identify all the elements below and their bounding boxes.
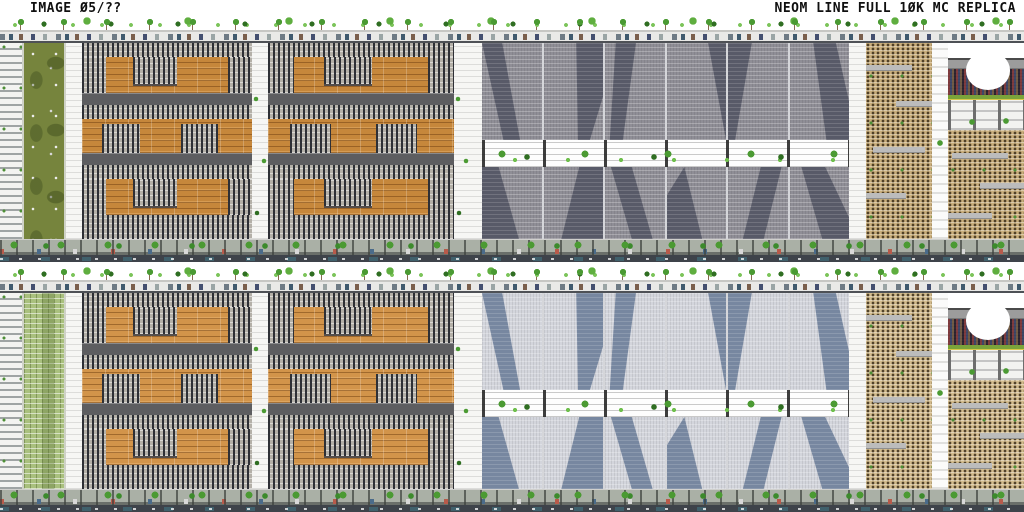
balcony-slab xyxy=(873,397,926,403)
diagonal-glass-facet xyxy=(605,43,665,140)
orange-residential-block xyxy=(82,43,252,239)
window-patch xyxy=(290,124,331,153)
window-strip xyxy=(82,165,252,179)
window-strip xyxy=(268,355,454,369)
diagonal-glass-facet xyxy=(728,417,788,489)
orange-mass xyxy=(82,57,252,93)
diagonal-glass-facet xyxy=(790,417,850,489)
glass-tower-module xyxy=(726,417,788,489)
striped-end-facade xyxy=(0,293,22,489)
window-strip xyxy=(268,165,454,179)
diagonal-glass-facet xyxy=(667,167,727,239)
window-strip xyxy=(82,105,252,119)
window-patch xyxy=(133,307,177,334)
glass-lower-band xyxy=(482,417,849,489)
stadium-stands xyxy=(948,319,1024,345)
orange-residential-block xyxy=(268,43,454,239)
window-patch xyxy=(324,429,372,456)
stadium-substructure xyxy=(948,100,1024,130)
rooftop-tree-row xyxy=(0,262,1024,280)
glass-tower-module xyxy=(542,417,604,489)
window-patch xyxy=(324,57,372,84)
diagonal-glass-facet xyxy=(728,167,788,239)
window-patch xyxy=(82,57,106,93)
balcony-slab xyxy=(866,193,906,199)
sand-tower xyxy=(948,43,1024,239)
glass-tower-module xyxy=(665,43,727,140)
page-title: NEOM LINE FULL 1ØK MC REPLICA xyxy=(775,1,1016,16)
white-service-tower xyxy=(252,293,268,489)
window-patch xyxy=(181,124,218,153)
balcony-slab xyxy=(952,153,1008,159)
window-strip xyxy=(268,293,454,307)
stadium-stands xyxy=(948,69,1024,95)
window-patch xyxy=(228,57,252,93)
white-service-tower xyxy=(454,293,482,489)
mid-level-tree-walkway xyxy=(482,390,849,417)
glass-lower-band xyxy=(482,167,849,239)
balcony-slab xyxy=(948,213,992,219)
window-patch xyxy=(268,179,294,215)
diagonal-glass-facet xyxy=(728,43,788,140)
diagonal-glass-facet xyxy=(667,43,727,140)
diagonal-glass-facet xyxy=(790,167,850,239)
diagonal-glass-facet xyxy=(482,167,542,239)
orange-residential-block xyxy=(82,293,252,489)
glass-tower-module xyxy=(665,293,727,390)
diagonal-glass-facet xyxy=(605,167,665,239)
panorama xyxy=(0,12,1024,512)
glass-tower-module xyxy=(482,293,542,390)
window-strip xyxy=(82,43,252,57)
orange-mass xyxy=(82,119,252,153)
orange-mass xyxy=(268,429,454,465)
white-service-tower xyxy=(454,43,482,239)
window-patch xyxy=(133,179,177,206)
orange-mass xyxy=(82,179,252,215)
window-patch xyxy=(228,307,252,343)
balcony-slab xyxy=(948,463,992,469)
window-patch xyxy=(133,57,177,84)
window-patch xyxy=(428,307,454,343)
white-service-tower xyxy=(849,43,866,239)
balcony-slab xyxy=(980,183,1024,189)
window-patch xyxy=(428,179,454,215)
glass-tower-module xyxy=(788,43,850,140)
glass-tower-module xyxy=(726,43,788,140)
window-strip xyxy=(82,415,252,429)
orange-mass xyxy=(268,57,454,93)
diagonal-glass-facet xyxy=(667,293,727,390)
roof-garden-terrace xyxy=(22,293,66,489)
glass-tower-module xyxy=(788,417,850,489)
diagonal-glass-facet xyxy=(544,417,604,489)
balcony-slab xyxy=(866,315,912,321)
facade-strip xyxy=(0,43,1024,239)
window-patch xyxy=(228,179,252,215)
white-service-tower xyxy=(66,293,82,489)
stadium-field-opening xyxy=(966,51,1011,90)
white-service-tower xyxy=(66,43,82,239)
tower-gap xyxy=(932,293,948,489)
top-panel xyxy=(0,12,1024,262)
window-patch xyxy=(82,179,106,215)
stadium xyxy=(948,43,1024,137)
window-patch xyxy=(268,307,294,343)
glass-tower-module xyxy=(482,167,542,239)
orange-mass xyxy=(82,369,252,403)
orange-mass xyxy=(82,429,252,465)
poster-canvas: IMAGE Ø5/?? NEOM LINE FULL 1ØK MC REPLIC… xyxy=(0,0,1024,512)
glass-tower-module xyxy=(542,293,604,390)
orange-residential-block xyxy=(268,293,454,489)
glass-tower-module xyxy=(665,417,727,489)
diagonal-glass-facet xyxy=(482,417,542,489)
diagonal-glass-facet xyxy=(544,167,604,239)
glass-tower-module xyxy=(542,167,604,239)
window-strip xyxy=(268,465,454,489)
window-strip xyxy=(82,215,252,239)
window-strip xyxy=(82,355,252,369)
image-counter-label: IMAGE Ø5/?? xyxy=(30,1,122,16)
stadium-field-opening xyxy=(966,301,1011,340)
balcony-slab xyxy=(980,433,1024,439)
stadium xyxy=(948,293,1024,387)
window-patch xyxy=(102,124,139,153)
diagonal-glass-facet xyxy=(667,417,727,489)
glass-tower-module xyxy=(603,293,665,390)
balcony-slab xyxy=(866,443,906,449)
balcony-slab xyxy=(896,351,932,357)
window-patch xyxy=(324,179,372,206)
diagonal-glass-facet xyxy=(482,293,542,390)
orange-mass xyxy=(268,179,454,215)
header: IMAGE Ø5/?? NEOM LINE FULL 1ØK MC REPLIC… xyxy=(0,0,1024,16)
window-patch xyxy=(82,429,106,465)
sand-tower xyxy=(948,293,1024,489)
glass-upper-band xyxy=(482,43,849,140)
window-patch xyxy=(290,374,331,403)
window-patch xyxy=(268,57,294,93)
glass-tower-section xyxy=(482,293,849,489)
window-strip xyxy=(268,105,454,119)
glass-tower-module xyxy=(482,417,542,489)
diagonal-glass-facet xyxy=(605,417,665,489)
glass-tower-module xyxy=(665,167,727,239)
diagonal-glass-facet xyxy=(544,43,604,140)
window-patch xyxy=(428,429,454,465)
window-patch xyxy=(181,374,218,403)
diagonal-glass-facet xyxy=(790,293,850,390)
rooftop-deck-strip xyxy=(0,280,1024,293)
street-level-arcade xyxy=(0,489,1024,505)
glass-tower-module xyxy=(542,43,604,140)
diagonal-glass-facet xyxy=(605,293,665,390)
orange-mass xyxy=(268,119,454,153)
balcony-slab xyxy=(952,403,1008,409)
window-patch xyxy=(102,374,139,403)
facade-strip xyxy=(0,293,1024,489)
glass-tower-module xyxy=(726,167,788,239)
window-patch xyxy=(82,307,106,343)
white-service-tower xyxy=(252,43,268,239)
window-patch xyxy=(133,429,177,456)
diagonal-glass-facet xyxy=(790,43,850,140)
glass-tower-module xyxy=(603,167,665,239)
glass-tower-module xyxy=(788,293,850,390)
glass-tower-module xyxy=(726,293,788,390)
glass-tower-module xyxy=(788,167,850,239)
window-patch xyxy=(268,429,294,465)
window-strip xyxy=(268,215,454,239)
window-patch xyxy=(376,124,417,153)
sand-tower xyxy=(866,293,932,489)
base-strip xyxy=(0,505,1024,512)
stadium-substructure xyxy=(948,350,1024,380)
roof-garden-terrace xyxy=(22,43,66,239)
balcony-slab xyxy=(866,65,912,71)
orange-mass xyxy=(82,307,252,343)
bottom-panel xyxy=(0,262,1024,512)
window-patch xyxy=(376,374,417,403)
window-patch xyxy=(228,429,252,465)
diagonal-glass-facet xyxy=(544,293,604,390)
balcony-slab xyxy=(896,101,932,107)
diagonal-glass-facet xyxy=(482,43,542,140)
window-strip xyxy=(268,415,454,429)
orange-mass xyxy=(268,307,454,343)
glass-tower-module xyxy=(482,43,542,140)
white-service-tower xyxy=(849,293,866,489)
glass-tower-module xyxy=(603,417,665,489)
glass-upper-band xyxy=(482,293,849,390)
sand-tower xyxy=(866,43,932,239)
orange-mass xyxy=(268,369,454,403)
glass-tower-module xyxy=(603,43,665,140)
striped-end-facade xyxy=(0,43,22,239)
tower-gap xyxy=(932,43,948,239)
window-patch xyxy=(428,57,454,93)
glass-tower-section xyxy=(482,43,849,239)
window-strip xyxy=(82,465,252,489)
mid-level-tree-walkway xyxy=(482,140,849,167)
street-level-arcade xyxy=(0,239,1024,255)
diagonal-glass-facet xyxy=(728,293,788,390)
rooftop-deck-strip xyxy=(0,30,1024,43)
window-patch xyxy=(324,307,372,334)
balcony-slab xyxy=(873,147,926,153)
window-strip xyxy=(268,43,454,57)
window-strip xyxy=(82,293,252,307)
